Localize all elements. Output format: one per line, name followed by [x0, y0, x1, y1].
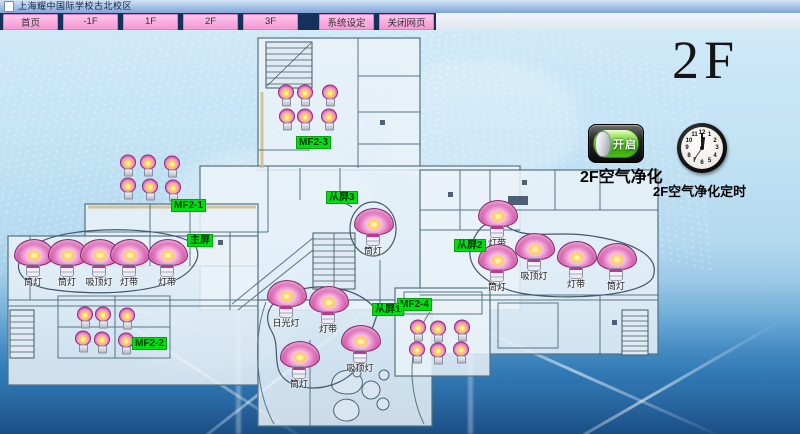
- zone-label[interactable]: MF2-3: [296, 136, 331, 149]
- zone-label[interactable]: MF2-1: [171, 199, 206, 212]
- clock-numeral: 6: [700, 160, 703, 166]
- nav-button-1f[interactable]: 1F: [123, 14, 178, 30]
- zone-label[interactable]: 主屏: [187, 234, 213, 247]
- clock-numeral: 11: [691, 132, 697, 138]
- lamp-bulb-icon: [279, 109, 295, 124]
- small-lamp-icon[interactable]: [321, 109, 337, 130]
- lamp-bulb-icon: [430, 343, 446, 358]
- lamp-bulb-icon: [280, 341, 320, 368]
- nav-button-3f[interactable]: 3F: [243, 14, 298, 30]
- air-timer-clock[interactable]: 121234567891011: [677, 123, 727, 173]
- small-lamp-icon[interactable]: [410, 320, 426, 341]
- small-lamp-icon[interactable]: [409, 342, 425, 363]
- toggle-cap-icon: [595, 131, 611, 157]
- large-lamp-icon[interactable]: 吸顶灯: [341, 325, 379, 363]
- large-lamp-icon[interactable]: 吸顶灯: [515, 233, 553, 271]
- large-lamp-icon[interactable]: 灯带: [148, 239, 186, 277]
- clock-numeral: 8: [687, 153, 690, 159]
- small-lamp-icon[interactable]: [279, 109, 295, 130]
- lamp-label: 筒灯: [58, 275, 76, 288]
- lamp-base-icon: [146, 193, 155, 201]
- large-lamp-icon[interactable]: 筒灯: [14, 239, 52, 277]
- lamp-bulb-icon: [267, 280, 307, 307]
- lamp-bulb-icon: [321, 109, 337, 124]
- lamp-bulb-icon: [148, 239, 188, 266]
- floor-indicator: 2F: [672, 30, 762, 92]
- lamp-bulb-icon: [77, 307, 93, 322]
- large-lamp-icon[interactable]: 筒灯: [597, 243, 635, 281]
- lamp-label: 吸顶灯: [85, 275, 112, 288]
- lamp-base-icon: [434, 357, 443, 365]
- lamp-base-icon: [414, 334, 423, 342]
- lamp-bulb-icon: [354, 208, 394, 235]
- lamp-bulb-icon: [309, 286, 349, 313]
- lamp-bulb-icon: [75, 331, 91, 346]
- lamp-bulb-icon: [453, 342, 469, 357]
- lamp-bulb-icon: [515, 233, 555, 260]
- lamp-base-icon: [283, 123, 292, 131]
- lamp-bulb-icon: [557, 241, 597, 268]
- large-lamp-icon[interactable]: 灯带: [478, 200, 516, 238]
- large-lamp-icon[interactable]: 日光灯: [267, 280, 305, 318]
- nav-button-close[interactable]: 关闭网页: [379, 14, 434, 30]
- lamp-base-icon: [282, 99, 291, 107]
- lamp-base-icon: [326, 99, 335, 107]
- small-lamp-icon[interactable]: [165, 180, 181, 201]
- lamp-bulb-icon: [140, 155, 156, 170]
- lamp-label: 灯带: [120, 275, 138, 288]
- lamp-label: 日光灯: [272, 316, 299, 329]
- lamp-base-icon: [458, 334, 467, 342]
- large-lamp-icon[interactable]: 灯带: [110, 239, 148, 277]
- lamp-bulb-icon: [95, 307, 111, 322]
- lamp-label: 灯带: [158, 275, 176, 288]
- lamp-base-icon: [122, 347, 131, 355]
- lamp-base-icon: [124, 169, 133, 177]
- small-lamp-icon[interactable]: [120, 178, 136, 199]
- clock-hub: [700, 146, 704, 150]
- clock-numeral: 7: [693, 158, 696, 164]
- small-lamp-icon[interactable]: [278, 85, 294, 106]
- zone-label[interactable]: 从屏1: [372, 303, 404, 316]
- lamp-bulb-icon: [278, 85, 294, 100]
- lamp-bulb-icon: [165, 180, 181, 195]
- clock-numeral: 2: [713, 138, 716, 144]
- app-window: 上海耀中国际学校古北校区 首页-1F1F2F3F系统设定关闭网页: [0, 0, 800, 434]
- small-lamp-icon[interactable]: [454, 320, 470, 341]
- clock-numeral: 9: [685, 145, 688, 151]
- small-lamp-icon[interactable]: [322, 85, 338, 106]
- lamp-label: 筒灯: [364, 244, 382, 257]
- lamp-base-icon: [98, 346, 107, 354]
- clock-numeral: 4: [713, 153, 716, 159]
- lamp-label: 筒灯: [607, 279, 625, 292]
- lamp-label: 灯带: [319, 322, 337, 335]
- navbar: 首页-1F1F2F3F系统设定关闭网页: [0, 13, 800, 30]
- lamp-bulb-icon: [597, 243, 637, 270]
- large-lamp-icon[interactable]: 筒灯: [354, 208, 392, 246]
- lamp-base-icon: [325, 123, 334, 131]
- lamp-label: 灯带: [567, 277, 585, 290]
- small-lamp-icon[interactable]: [120, 155, 136, 176]
- page-icon: [4, 1, 14, 12]
- toggle-state-label: 开启: [611, 136, 639, 152]
- nav-button-2f[interactable]: 2F: [183, 14, 238, 30]
- titlebar: 上海耀中国际学校古北校区: [0, 0, 800, 14]
- small-lamp-icon[interactable]: [77, 307, 93, 328]
- lamp-base-icon: [124, 192, 133, 200]
- toggle-body: 开启: [593, 129, 639, 158]
- clock-numeral: 12: [699, 130, 706, 136]
- nav-button-minus-1f[interactable]: -1F: [63, 14, 118, 30]
- nav-button-home[interactable]: 首页: [3, 14, 58, 30]
- small-lamp-icon[interactable]: [142, 179, 158, 200]
- window-title: 上海耀中国际学校古北校区: [18, 0, 132, 13]
- lamp-label: 筒灯: [24, 275, 42, 288]
- small-lamp-icon[interactable]: [430, 321, 446, 342]
- lamp-base-icon: [144, 169, 153, 177]
- nav-button-settings[interactable]: 系统设定: [319, 14, 374, 30]
- small-lamp-icon[interactable]: [297, 85, 313, 106]
- lamp-bulb-icon: [119, 308, 135, 323]
- small-lamp-icon[interactable]: [95, 307, 111, 328]
- lamp-bulb-icon: [94, 332, 110, 347]
- lamp-base-icon: [99, 321, 108, 329]
- lamp-bulb-icon: [409, 342, 425, 357]
- lamp-bulb-icon: [120, 178, 136, 193]
- lamp-base-icon: [434, 335, 443, 343]
- lamp-base-icon: [301, 99, 310, 107]
- small-lamp-icon[interactable]: [430, 343, 446, 364]
- small-lamp-icon[interactable]: [297, 109, 313, 130]
- lamp-base-icon: [168, 170, 177, 178]
- navbar-buttons: 首页-1F1F2F3F系统设定关闭网页: [0, 14, 436, 30]
- small-lamp-icon[interactable]: [140, 155, 156, 176]
- navbar-filler: [436, 13, 800, 30]
- lamp-label: 吸顶灯: [346, 361, 373, 374]
- lamp-bulb-icon: [478, 200, 518, 227]
- lamp-bulb-icon: [297, 85, 313, 100]
- clock-numeral: 10: [686, 138, 693, 144]
- clock-numeral: 3: [715, 145, 718, 151]
- small-lamp-icon[interactable]: [119, 308, 135, 329]
- lamp-label: 筒灯: [488, 280, 506, 293]
- zone-label[interactable]: 从屏2: [454, 239, 486, 252]
- small-lamp-icon[interactable]: [453, 342, 469, 363]
- large-lamp-icon[interactable]: 筒灯: [280, 341, 318, 379]
- lamp-label: 筒灯: [290, 377, 308, 390]
- lamp-label: 吸顶灯: [520, 269, 547, 282]
- lamp-bulb-icon: [164, 156, 180, 171]
- lamp-base-icon: [301, 123, 310, 131]
- zone-label[interactable]: MF2-2: [132, 337, 167, 350]
- large-lamp-icon[interactable]: 灯带: [309, 286, 347, 324]
- clock-face: 121234567891011: [681, 127, 723, 169]
- lamp-bulb-icon: [110, 239, 150, 266]
- lamp-base-icon: [457, 356, 466, 364]
- clock-numeral: 1: [708, 132, 711, 138]
- air-timer-caption: 2F空气净化定时: [653, 181, 783, 200]
- lamp-bulb-icon: [297, 109, 313, 124]
- small-lamp-icon[interactable]: [164, 156, 180, 177]
- lamp-bulb-icon: [341, 325, 381, 352]
- lamp-base-icon: [81, 321, 90, 329]
- clock-numeral: 5: [708, 158, 711, 164]
- lamp-bulb-icon: [322, 85, 338, 100]
- small-lamp-icon[interactable]: [75, 331, 91, 352]
- lamp-bulb-icon: [410, 320, 426, 335]
- large-lamp-icon[interactable]: 灯带: [557, 241, 595, 279]
- lamp-bulb-icon: [142, 179, 158, 194]
- zone-label[interactable]: 从屏3: [326, 191, 358, 204]
- small-lamp-icon[interactable]: [94, 332, 110, 353]
- lamp-base-icon: [79, 345, 88, 353]
- lamp-base-icon: [123, 322, 132, 330]
- lamp-bulb-icon: [454, 320, 470, 335]
- air-purify-toggle[interactable]: 开启: [588, 124, 644, 163]
- lamp-bulb-icon: [430, 321, 446, 336]
- lamp-base-icon: [413, 356, 422, 364]
- lamp-bulb-icon: [120, 155, 136, 170]
